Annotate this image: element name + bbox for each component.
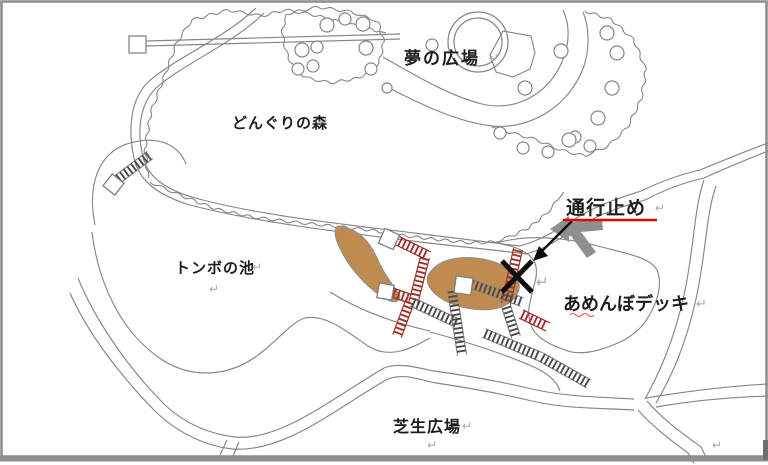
deck-platform-square	[378, 228, 399, 249]
tree-icon	[584, 140, 596, 152]
tree-icon	[356, 17, 370, 31]
deck-walkway	[502, 305, 521, 339]
tree-icon	[295, 43, 309, 57]
border-corner-nub	[763, 440, 768, 460]
deck-platform-square	[377, 283, 394, 300]
paragraph-mark: ↵	[462, 419, 472, 433]
tree-icon	[562, 133, 576, 147]
paragraph-marks: ↵↵↵↵↵↵↵↵↵↵	[209, 51, 722, 452]
deck-walkway	[393, 299, 414, 337]
trail-line	[646, 384, 768, 398]
paragraph-mark: ↵	[536, 274, 549, 291]
gray-bent-arrow-icon	[550, 216, 603, 258]
trail-paths	[70, 8, 768, 463]
paragraph-mark: ↵	[712, 438, 722, 452]
deck-walkway	[539, 353, 591, 388]
tree-icon	[542, 146, 554, 158]
tree-icon	[307, 60, 319, 72]
map-structure-square	[129, 36, 146, 53]
trail-line	[383, 12, 588, 126]
tree-icon	[339, 13, 351, 25]
trail-line	[638, 410, 694, 463]
trail-line	[92, 232, 430, 373]
tree-icon	[591, 111, 605, 125]
tree-icon	[517, 142, 529, 154]
tree-icon	[382, 83, 392, 93]
tree-icon	[359, 41, 373, 55]
tree-icon	[610, 46, 624, 60]
label-dream-plaza: 夢の広場	[404, 48, 480, 68]
park-map-figure: 夢の広場 どんぐりの森 トンボの池 通行止め あめんぼデッキ 芝生広場 ↵↵↵↵…	[0, 0, 768, 465]
label-dragonfly-pond: トンボの池	[175, 259, 255, 277]
tree-icon	[292, 63, 304, 75]
label-amenbo-deck: あめんぼデッキ	[563, 293, 689, 314]
deck-walkway	[409, 256, 430, 305]
park-map: 夢の広場 どんぐりの森 トンボの池 通行止め あめんぼデッキ 芝生広場 ↵↵↵↵…	[0, 0, 768, 465]
label-road-closed: 通行止め	[566, 196, 646, 219]
paragraph-mark: ↵	[655, 201, 665, 215]
paragraph-mark: ↵	[209, 282, 219, 296]
tree-icon	[600, 26, 614, 40]
label-acorn-forest: どんぐりの森	[232, 114, 328, 132]
label-lawn-plaza: 芝生広場	[393, 417, 461, 436]
tree-icon	[311, 41, 323, 53]
tree-icon	[554, 44, 568, 58]
paragraph-mark: ↵	[489, 51, 499, 65]
deck-platform-square	[454, 276, 473, 295]
paragraph-mark: ↵	[696, 296, 707, 311]
tree-icon	[320, 18, 334, 32]
trail-line	[647, 401, 707, 459]
paragraph-mark: ↵	[427, 438, 437, 452]
deck-walkway	[482, 329, 542, 361]
forest-edge	[144, 9, 386, 178]
tree-icon	[518, 81, 532, 95]
tree-icon	[494, 127, 506, 139]
trail-line	[70, 293, 634, 449]
paragraph-mark: ↵	[318, 115, 328, 129]
paragraph-mark: ↵	[252, 260, 262, 274]
trail-line	[656, 396, 768, 407]
map-labels: 夢の広場 どんぐりの森 トンボの池 通行止め あめんぼデッキ 芝生広場	[175, 48, 689, 436]
deck-platform-square	[103, 174, 124, 195]
tree-icon	[605, 81, 619, 95]
deck-walkway	[519, 310, 550, 331]
trail-line	[131, 8, 768, 254]
tree-icon	[365, 63, 377, 75]
